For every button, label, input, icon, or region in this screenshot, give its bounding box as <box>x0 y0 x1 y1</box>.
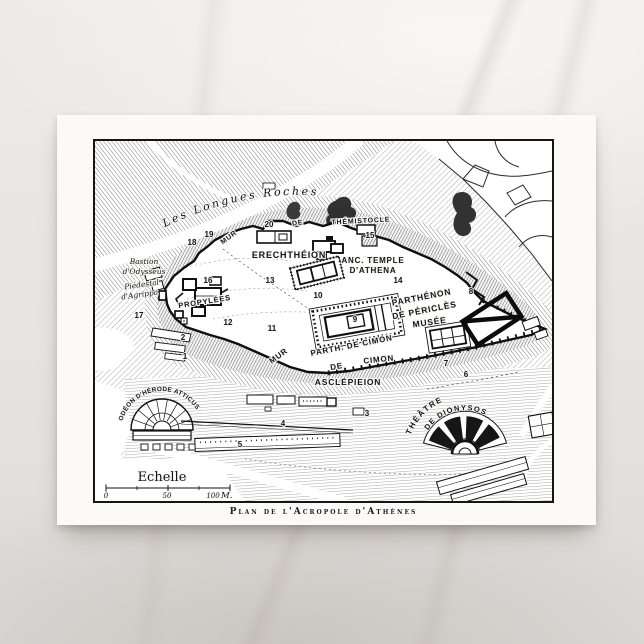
scale-50: 50 <box>163 492 172 500</box>
map-number-11: 11 <box>268 324 277 333</box>
map-number-5: 5 <box>238 440 243 449</box>
map-number-9: 9 <box>353 315 358 324</box>
scale-unit: M. <box>220 491 232 501</box>
label-anc-temple-1: ANC. TEMPLE <box>341 256 404 265</box>
label-bastion-2: d'Odysseus <box>123 267 166 276</box>
map-number-14: 14 <box>394 276 403 285</box>
map-number-6: 6 <box>464 370 469 379</box>
map-frame: Les Longues Roches ODÉON D'HÉRODE ATTICU… <box>93 139 554 503</box>
map-number-18: 18 <box>188 238 197 247</box>
map-number-7: 7 <box>444 359 449 368</box>
map-number-10: 10 <box>314 291 323 300</box>
map-number-13: 13 <box>266 276 275 285</box>
postcard: Les Longues Roches ODÉON D'HÉRODE ATTICU… <box>57 115 596 525</box>
map-number-4: 4 <box>281 419 286 428</box>
scale-title: Echelle <box>138 470 187 485</box>
label-asclepieion: ASCLÉPIEION <box>315 377 381 387</box>
map-number-1: 1 <box>183 352 188 361</box>
map-number-16: 16 <box>204 276 213 285</box>
map-number-12: 12 <box>224 318 233 327</box>
map-number-19: 19 <box>205 230 214 239</box>
map-number-3: 3 <box>365 409 370 418</box>
postcard-caption: Plan de l'Acropole d'Athènes <box>93 507 554 517</box>
scale-0: 0 <box>104 492 109 500</box>
map-number-20: 20 <box>265 220 274 229</box>
label-bastion-1: Bastion <box>129 257 159 266</box>
label-anc-temple-2: D'ATHENA <box>350 266 397 275</box>
map-number-2: 2 <box>181 333 186 342</box>
north-wall-building <box>257 231 291 243</box>
map-number-8: 8 <box>469 287 474 296</box>
scale-100: 100 <box>206 492 220 500</box>
map-number-17: 17 <box>135 311 144 320</box>
map-number-15: 15 <box>366 231 375 240</box>
acropolis-map: Les Longues Roches ODÉON D'HÉRODE ATTICU… <box>95 141 552 501</box>
label-erechtheion: ERECHTHÉION <box>252 250 326 260</box>
